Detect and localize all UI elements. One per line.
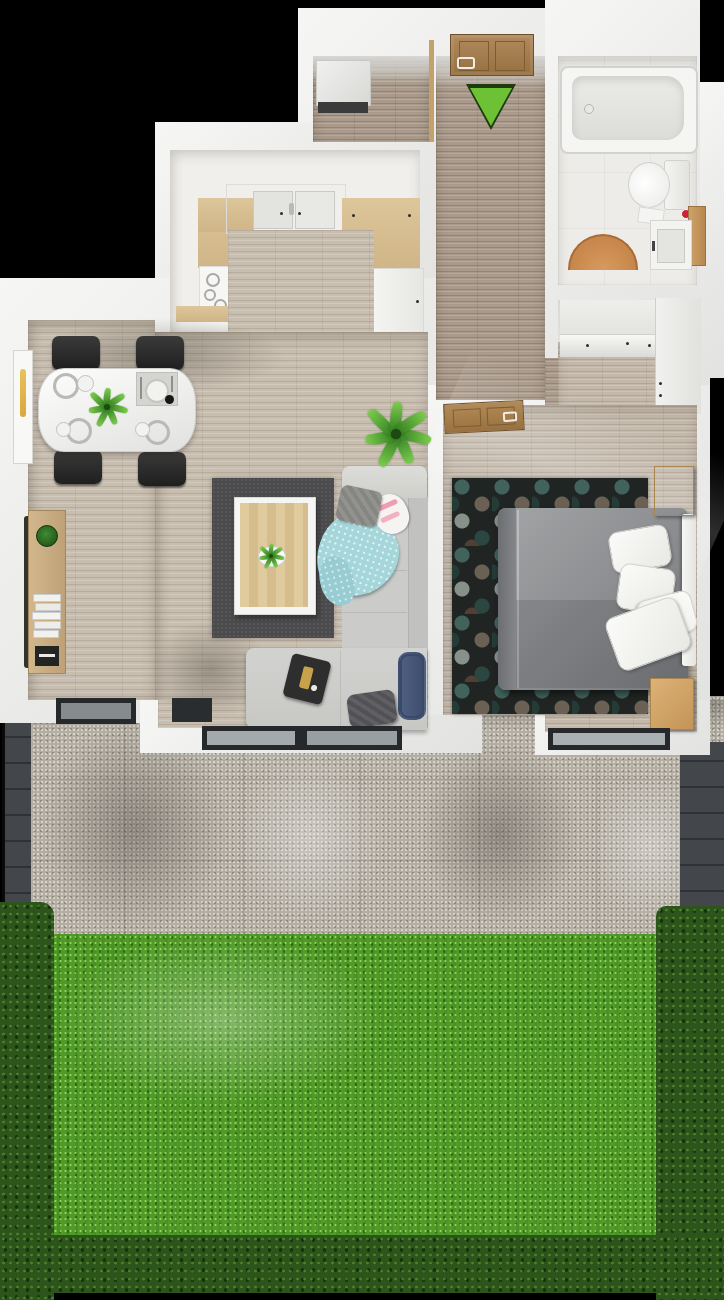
bowl — [56, 422, 71, 437]
window-curtain-glimpse — [20, 369, 26, 417]
dresser-knob-icon — [586, 344, 589, 347]
door-handle-icon — [457, 57, 475, 69]
book-stack — [34, 621, 61, 629]
cabinet-knob-icon — [416, 300, 419, 303]
entry-door — [450, 34, 534, 76]
dining-chair — [136, 336, 184, 370]
dark-sofa-pillow — [346, 689, 398, 729]
vanity-cabinet — [650, 220, 692, 270]
sofa-chaise-seam — [340, 650, 341, 728]
leaf-icon — [269, 544, 274, 556]
cutlery-icon — [171, 376, 173, 392]
living-sliding-door — [202, 726, 402, 750]
book-stack — [32, 612, 61, 620]
book-stack — [33, 594, 61, 602]
dining-chair — [138, 452, 186, 486]
book-stack — [33, 630, 59, 638]
kitchen-center-wood-floor — [228, 230, 374, 332]
vanity-sink — [657, 229, 685, 263]
wardrobe-knob-icon — [659, 382, 662, 385]
dining-chair — [52, 336, 100, 370]
nightstand-bottom — [650, 678, 694, 730]
bed-foot-fold — [498, 508, 516, 690]
bedroom-terrace-window — [548, 728, 670, 750]
dining-terrace-door — [56, 698, 136, 724]
kitchen-sink-basin — [295, 191, 335, 229]
cutlery-icon — [140, 377, 142, 399]
vestibule-cabinet — [316, 60, 371, 106]
floor-plan-canvas — [0, 0, 724, 1300]
dining-chair — [54, 450, 102, 484]
cabinet-knob-icon — [408, 214, 411, 217]
bedroom-door-open — [443, 400, 524, 434]
terrace-shadow-patch — [420, 740, 580, 925]
nightstand-top — [654, 466, 694, 516]
terrace-door-corner-frame — [172, 698, 212, 722]
black-cup — [165, 395, 174, 404]
vanity-handle-icon — [652, 241, 655, 251]
navy-bolster-cushion — [398, 652, 426, 720]
terrace-light-patch — [235, 755, 385, 920]
dresser-knob-icon — [648, 344, 651, 347]
sofa-seam — [343, 612, 407, 613]
kitchen-faucet-icon — [289, 203, 294, 215]
cabinet-knob-icon — [298, 212, 301, 215]
bowl — [135, 422, 150, 437]
kitchen-sink-basin — [253, 191, 293, 229]
toilet-bowl — [628, 162, 670, 208]
lawn-light-patch — [60, 934, 380, 1104]
placemat — [136, 372, 178, 406]
vestibule-cabinet-base — [318, 102, 368, 113]
living-window-left — [13, 350, 33, 464]
cabinet-knob-icon — [352, 214, 355, 217]
dinner-plate — [53, 373, 79, 399]
storage-box — [35, 646, 59, 666]
dresser-top — [560, 300, 655, 334]
door-handle-icon — [503, 411, 518, 422]
burner-icon — [204, 289, 216, 301]
terrace-fence-left — [2, 710, 31, 920]
dresser-knob-icon — [626, 342, 629, 345]
bedroom-door-panel — [453, 408, 482, 427]
cabinet-knob-icon — [280, 212, 283, 215]
garden-hedge-bottom — [0, 1235, 724, 1293]
hall-wood-divider — [429, 40, 434, 142]
corridor-nook-passage — [545, 358, 558, 410]
storage-box-slit — [39, 654, 55, 657]
tray-white-item — [310, 684, 317, 691]
bathtub — [560, 66, 698, 154]
plant-pot — [36, 525, 58, 547]
pink-stripe — [380, 511, 400, 524]
black-corner-top-right — [700, 0, 724, 82]
wardrobe — [655, 298, 701, 414]
sofa-back-cushion-strip — [408, 498, 428, 650]
burner-icon — [206, 273, 220, 287]
wardrobe-knob-icon — [659, 394, 662, 397]
entry-door-panel — [495, 41, 525, 71]
bowl — [77, 375, 94, 392]
bathtub-drain-icon — [584, 104, 594, 114]
book-stack — [35, 603, 61, 611]
terrace-fence-right — [680, 742, 724, 918]
kitchen-sink-cabinet — [226, 184, 346, 234]
dresser-front — [560, 334, 655, 357]
